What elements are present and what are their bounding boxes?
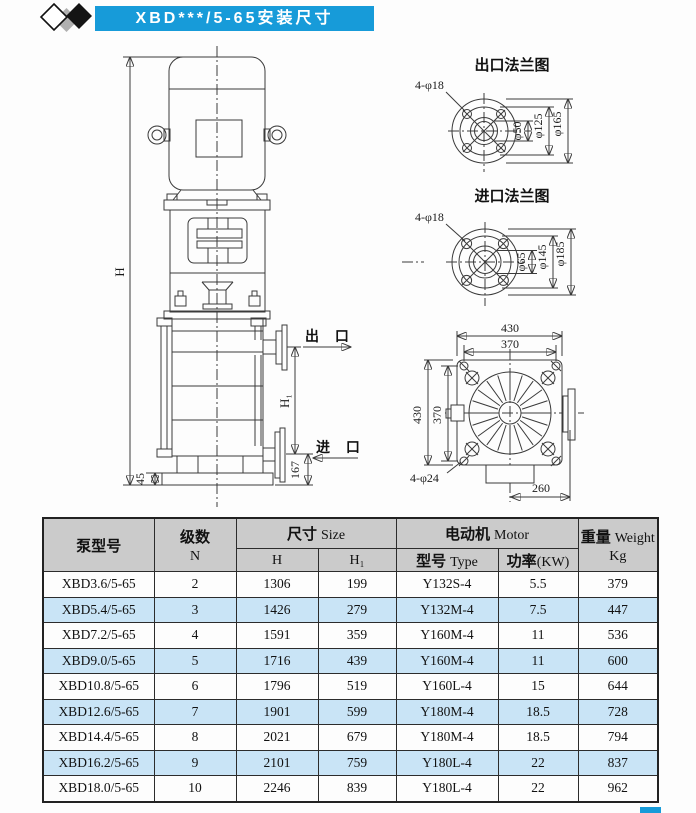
dim-phi125-label: φ125 (531, 114, 545, 139)
table-cell: 1591 (236, 623, 318, 649)
table-cell: 2246 (236, 776, 318, 802)
dim-260-label: 260 (532, 481, 550, 495)
dim-phi50-label: φ50 (510, 122, 524, 141)
table-cell: Y160M-4 (396, 648, 498, 674)
table-cell: 379 (578, 572, 658, 598)
table-row: XBD10.8/5-6561796519Y160L-415644 (43, 674, 658, 700)
table-cell: XBD10.8/5-65 (43, 674, 154, 700)
table-cell: 22 (498, 750, 578, 776)
installation-drawing: H 45 H₁ 167 出 口 进 口 出口法兰图 (0, 36, 696, 514)
lifting-eye-left (148, 126, 166, 144)
table-cell: 18.5 (498, 725, 578, 751)
page-title: XBD***/5-65安装尺寸 (95, 6, 374, 31)
outlet-flange-title: 出口法兰图 (474, 56, 549, 74)
table-cell: 8 (154, 725, 236, 751)
table-cell: 600 (578, 648, 658, 674)
inlet-bolt-label: 4-φ18 (415, 210, 444, 224)
table-cell: 3 (154, 597, 236, 623)
dim-370-top-label: 370 (501, 337, 519, 351)
col-header-size: 尺寸 Size (236, 518, 396, 549)
table-row: XBD12.6/5-6571901599Y180M-418.5728 (43, 699, 658, 725)
table-cell: 1796 (236, 674, 318, 700)
inlet-flange-title: 进口法兰图 (474, 187, 549, 205)
inlet-label: 进 口 (316, 439, 366, 455)
table-cell: XBD12.6/5-65 (43, 699, 154, 725)
lifting-eye-right (268, 126, 286, 144)
table-cell: 839 (318, 776, 396, 802)
table-cell: Y132S-4 (396, 572, 498, 598)
table-row: XBD5.4/5-6531426279Y132M-47.5447 (43, 597, 658, 623)
col-header-model: 泵型号 (43, 518, 154, 572)
table-cell: 1716 (236, 648, 318, 674)
outlet-bolt-label: 4-φ18 (415, 78, 444, 92)
pump-dimensions: H 45 H₁ 167 出 口 进 口 (112, 57, 366, 485)
table-cell: 447 (578, 597, 658, 623)
table-cell: 5 (154, 648, 236, 674)
table-cell: 7.5 (498, 597, 578, 623)
dim-phi185-label: φ185 (553, 242, 567, 267)
table-cell: 18.5 (498, 699, 578, 725)
table-row: XBD9.0/5-6551716439Y160M-411600 (43, 648, 658, 674)
inlet-flange-diagram: 进口法兰图 4-φ18 φ65 (402, 187, 576, 306)
table-cell: Y180L-4 (396, 750, 498, 776)
col-header-stages: 级数N (154, 518, 236, 572)
table-cell: 536 (578, 623, 658, 649)
dim-phi65-label: φ65 (514, 253, 528, 272)
table-cell: 6 (154, 674, 236, 700)
outlet-label: 出 口 (305, 328, 355, 344)
dim-430-left-label: 430 (410, 406, 424, 424)
dim-H1-label: H₁ (277, 394, 292, 408)
motor-nameplate (196, 120, 242, 157)
inlet-port (263, 428, 285, 482)
table-cell: XBD18.0/5-65 (43, 776, 154, 802)
table-row: XBD14.4/5-6582021679Y180M-418.5794 (43, 725, 658, 751)
table-cell: 794 (578, 725, 658, 751)
table-cell: 519 (318, 674, 396, 700)
table-cell: 10 (154, 776, 236, 802)
pump-casing (157, 311, 270, 457)
table-row: XBD18.0/5-65102246839Y180L-422962 (43, 776, 658, 802)
table-cell: 359 (318, 623, 396, 649)
pump-side-view: H 45 H₁ 167 出 口 进 口 (112, 46, 366, 507)
table-cell: 728 (578, 699, 658, 725)
table-cell: 1901 (236, 699, 318, 725)
col-header-weight: 重量 WeightKg (578, 518, 658, 572)
table-row: XBD16.2/5-6592101759Y180L-422837 (43, 750, 658, 776)
col-header-h1: H₁ (318, 549, 396, 572)
spec-table: 泵型号 级数N 尺寸 Size 电动机 Motor 重量 WeightKg H … (42, 517, 659, 803)
brand-diamonds-logo (36, 2, 98, 34)
dim-167-label: 167 (288, 461, 302, 479)
table-cell: 439 (318, 648, 396, 674)
dim-430-top-label: 430 (501, 321, 519, 335)
table-cell: 962 (578, 776, 658, 802)
table-cell: 7 (154, 699, 236, 725)
table-cell: 679 (318, 725, 396, 751)
table-cell: 1306 (236, 572, 318, 598)
dim-45-label: 45 (133, 473, 147, 485)
table-cell: 1426 (236, 597, 318, 623)
col-header-power: 功率(KW) (498, 549, 578, 572)
table-cell: 759 (318, 750, 396, 776)
base-bolt-label: 4-φ24 (410, 471, 439, 485)
table-cell: Y160M-4 (396, 623, 498, 649)
table-cell: 837 (578, 750, 658, 776)
dim-phi145-label: φ145 (535, 245, 549, 270)
dim-phi165-label: φ165 (550, 112, 564, 137)
table-cell: 5.5 (498, 572, 578, 598)
table-cell: 11 (498, 648, 578, 674)
table-cell: Y160L-4 (396, 674, 498, 700)
table-cell: 22 (498, 776, 578, 802)
table-cell: 2021 (236, 725, 318, 751)
table-cell: Y180L-4 (396, 776, 498, 802)
table-cell: XBD7.2/5-65 (43, 623, 154, 649)
table-cell: 199 (318, 572, 396, 598)
table-cell: 11 (498, 623, 578, 649)
table-cell: Y180M-4 (396, 699, 498, 725)
table-row: XBD7.2/5-6541591359Y160M-411536 (43, 623, 658, 649)
table-cell: 4 (154, 623, 236, 649)
table-body: XBD3.6/5-6521306199Y132S-45.5379XBD5.4/5… (43, 572, 658, 802)
table-cell: XBD3.6/5-65 (43, 572, 154, 598)
dim-H-label: H (112, 267, 127, 276)
table-cell: Y132M-4 (396, 597, 498, 623)
table-cell: XBD5.4/5-65 (43, 597, 154, 623)
table-cell: 9 (154, 750, 236, 776)
table-cell: 2101 (236, 750, 318, 776)
table-row: XBD3.6/5-6521306199Y132S-45.5379 (43, 572, 658, 598)
dim-370-left-label: 370 (430, 406, 444, 424)
table-cell: XBD9.0/5-65 (43, 648, 154, 674)
base-top-view: 430 370 430 370 4-φ24 260 (410, 321, 584, 502)
table-cell: 15 (498, 674, 578, 700)
datasheet-page: XBD***/5-65安装尺寸 (0, 0, 696, 813)
table-cell: XBD16.2/5-65 (43, 750, 154, 776)
col-header-motor: 电动机 Motor (396, 518, 578, 549)
outlet-flange-diagram: 出口法兰图 4-φ18 φ50 φ125 (415, 56, 573, 172)
next-section-bar-fragment (640, 807, 661, 813)
table-cell: 644 (578, 674, 658, 700)
table-cell: 2 (154, 572, 236, 598)
table-cell: 279 (318, 597, 396, 623)
col-header-h: H (236, 549, 318, 572)
table-cell: XBD14.4/5-65 (43, 725, 154, 751)
outlet-port (263, 325, 287, 370)
table-cell: 599 (318, 699, 396, 725)
col-header-type: 型号 Type (396, 549, 498, 572)
table-cell: Y180M-4 (396, 725, 498, 751)
